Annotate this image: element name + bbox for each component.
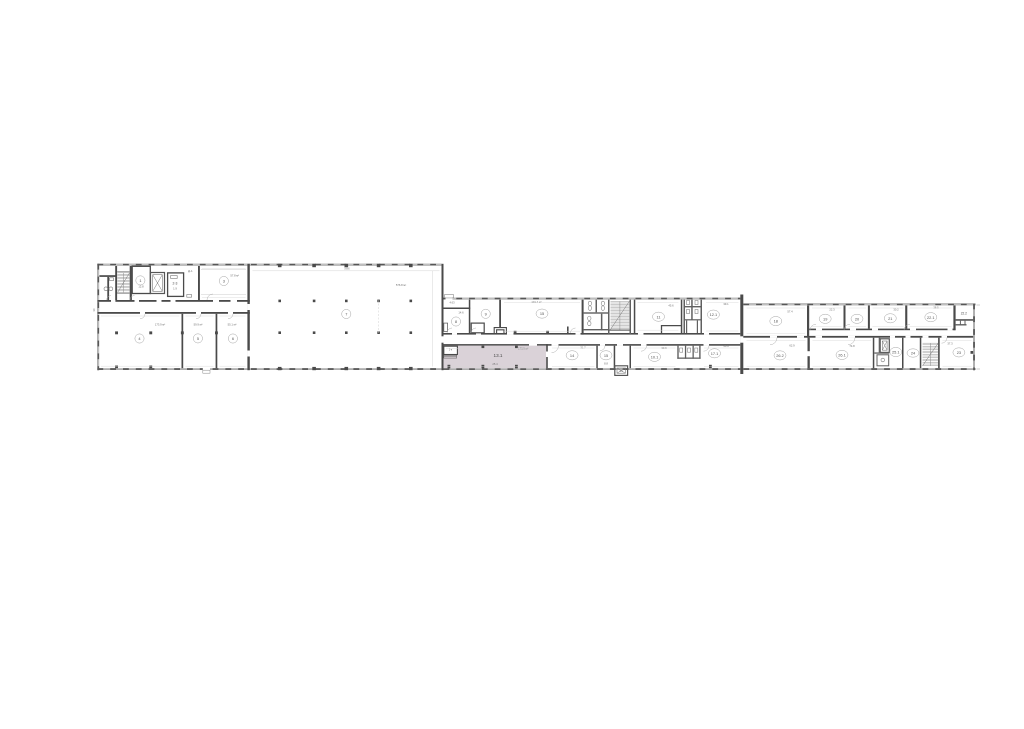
svg-text:1: 1 xyxy=(139,278,141,283)
svg-text:7: 7 xyxy=(345,312,347,317)
svg-text:8: 8 xyxy=(455,319,457,324)
svg-text:173.9 м²: 173.9 м² xyxy=(518,347,528,351)
svg-text:14.6: 14.6 xyxy=(458,311,464,315)
svg-text:31.7: 31.7 xyxy=(580,345,586,349)
svg-text:37.3: 37.3 xyxy=(947,342,953,346)
svg-text:11: 11 xyxy=(656,314,660,319)
svg-text:3: 3 xyxy=(223,279,225,284)
svg-text:45.6: 45.6 xyxy=(668,304,674,308)
svg-text:131.4 м²: 131.4 м² xyxy=(531,300,541,304)
svg-text:19: 19 xyxy=(823,316,827,321)
svg-text:12.1: 12.1 xyxy=(710,312,718,317)
svg-text:25.4: 25.4 xyxy=(492,362,498,366)
svg-text:57.8 м²: 57.8 м² xyxy=(230,274,239,278)
svg-text:21: 21 xyxy=(888,316,892,321)
svg-text:5980: 5980 xyxy=(344,267,350,270)
svg-text:13.1: 13.1 xyxy=(494,353,503,358)
svg-text:25.1: 25.1 xyxy=(892,350,900,355)
svg-text:26.2: 26.2 xyxy=(776,353,784,358)
svg-text:39.1: 39.1 xyxy=(723,302,729,306)
svg-text:12.8: 12.8 xyxy=(138,285,144,289)
svg-text:23: 23 xyxy=(957,350,961,355)
svg-text:57.4: 57.4 xyxy=(787,310,793,314)
svg-text:62.9: 62.9 xyxy=(789,344,795,348)
svg-text:Д-1: Д-1 xyxy=(188,269,193,273)
svg-text:5: 5 xyxy=(197,336,199,341)
svg-text:1.9: 1.9 xyxy=(173,287,177,291)
svg-text:8.8: 8.8 xyxy=(604,362,608,366)
svg-text:38.5: 38.5 xyxy=(933,306,939,310)
svg-text:26.1: 26.1 xyxy=(838,353,846,358)
svg-text:22.2: 22.2 xyxy=(961,312,967,316)
svg-text:4.63: 4.63 xyxy=(449,301,455,305)
svg-text:6: 6 xyxy=(232,336,234,341)
svg-text:10.1: 10.1 xyxy=(651,354,659,359)
svg-text:59.9 м²: 59.9 м² xyxy=(194,323,203,327)
svg-text:18: 18 xyxy=(774,319,778,324)
svg-text:17.1: 17.1 xyxy=(711,351,719,356)
svg-text:40.9: 40.9 xyxy=(723,344,729,348)
svg-text:9: 9 xyxy=(485,311,487,316)
svg-text:74.8: 74.8 xyxy=(849,344,855,348)
svg-text:55.1 м²: 55.1 м² xyxy=(228,323,237,327)
svg-text:576.8 м²: 576.8 м² xyxy=(396,283,406,287)
svg-text:15: 15 xyxy=(604,353,608,358)
svg-text:15: 15 xyxy=(540,311,544,316)
svg-text:2-3: 2-3 xyxy=(173,282,178,286)
svg-text:22.1: 22.1 xyxy=(927,315,935,320)
svg-text:173.9 м²: 173.9 м² xyxy=(155,323,165,327)
